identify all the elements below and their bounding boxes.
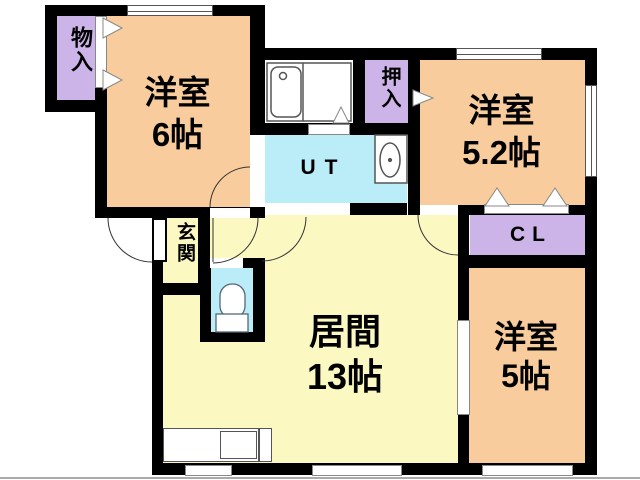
wall-mid-top-band (250, 48, 597, 60)
bottom-border-line (0, 477, 640, 479)
wall-left-exterior (45, 5, 57, 112)
door-gap-toilet (210, 258, 243, 268)
floor-plan: 物入 洋室 6帖 押入 UT 洋室 5.2帖 CL 玄関 居間 13帖 洋室 5… (0, 0, 640, 480)
arc-entry-door (108, 218, 152, 262)
label-western52-size: 5.2帖 (418, 132, 585, 174)
door-gap-utility (265, 203, 350, 215)
label-western6: 洋室 6帖 (105, 72, 250, 156)
label-western52-name: 洋室 (418, 90, 585, 132)
window-western6-top (127, 5, 213, 16)
window-bottom-left (185, 465, 232, 476)
label-living: 居間 13帖 (265, 310, 425, 399)
toilet-room-floor (211, 268, 253, 332)
kitchen-counter-divider (258, 429, 260, 461)
label-oshiire: 押入 (375, 66, 404, 110)
window-western52-top (456, 48, 542, 60)
label-western5-name: 洋室 (466, 318, 586, 357)
label-western6-name: 洋室 (105, 72, 250, 114)
label-living-name: 居間 (265, 310, 425, 355)
room-bath-floor (265, 60, 353, 125)
window-bottom-middle (312, 465, 402, 476)
wall-bath-right (353, 48, 365, 125)
entry-door-leaf (152, 218, 167, 262)
label-western6-size: 6帖 (105, 114, 250, 156)
door-gap-western52 (420, 205, 458, 215)
door-gap-western6 (210, 208, 250, 218)
label-utility: UT (265, 155, 373, 182)
door-strip-bath (308, 124, 350, 135)
label-western5-size: 5帖 (466, 357, 586, 396)
wall-closet-bottom (458, 255, 585, 268)
wall-western6-right (250, 16, 265, 135)
label-western52: 洋室 5.2帖 (418, 90, 585, 174)
window-bottom-western5 (482, 465, 573, 476)
label-living-size: 13帖 (265, 355, 425, 400)
door-strip-closet (484, 204, 569, 214)
window-western52-right (585, 85, 597, 177)
label-entrance: 玄関 (171, 222, 198, 264)
label-closet: CL (470, 222, 585, 249)
kitchen-sink (220, 431, 257, 459)
wall-ut-bottom (350, 203, 407, 215)
label-storage: 物入 (64, 26, 96, 74)
label-western5: 洋室 5帖 (466, 318, 586, 396)
